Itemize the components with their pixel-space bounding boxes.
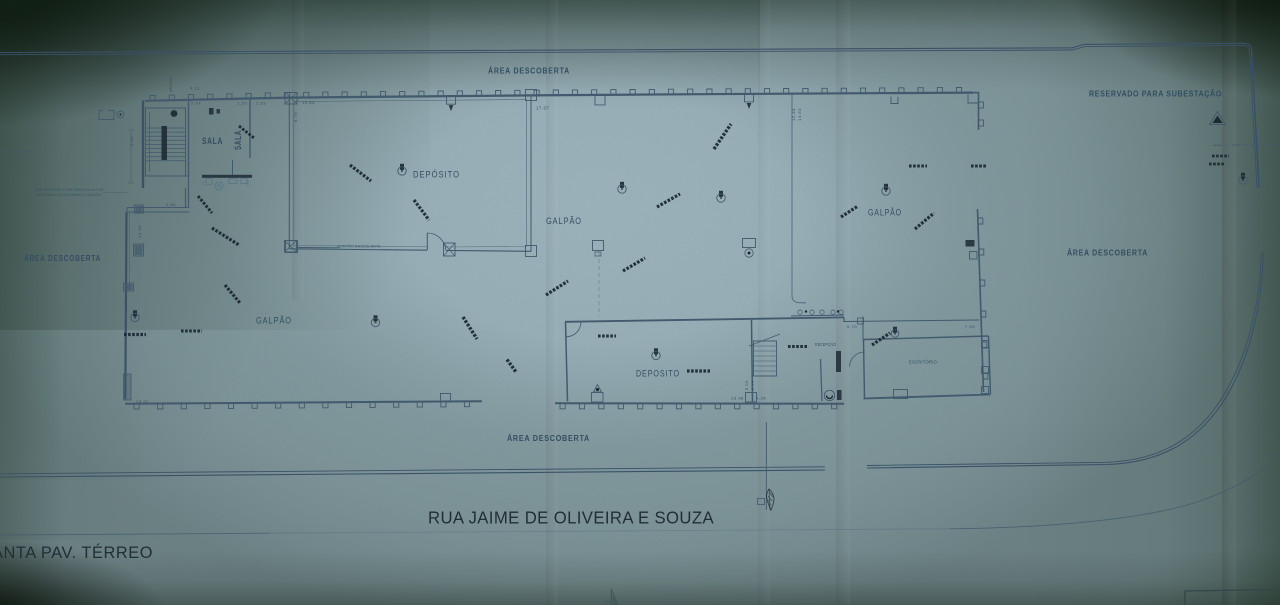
svg-text:ARGUA: ARGUA [169, 77, 173, 92]
svg-text:2.75: 2.75 [751, 380, 755, 390]
svg-text:GALPÃO: GALPÃO [256, 316, 292, 327]
svg-text:ESCRITÓRIO: ESCRITÓRIO [909, 360, 937, 365]
svg-text:ÁREA DESCOBERTA: ÁREA DESCOBERTA [1067, 249, 1148, 258]
svg-text:13.98: 13.98 [731, 396, 744, 401]
svg-text:28.32: 28.32 [136, 399, 149, 404]
svg-text:14.50: 14.50 [797, 108, 802, 121]
svg-text:ÁREA DESCOBERTA: ÁREA DESCOBERTA [488, 67, 570, 76]
svg-text:DEPOSITO: DEPOSITO [636, 369, 680, 379]
svg-text:SALA: SALA [202, 136, 223, 146]
svg-text:ANTESSALA DO ELEMENTO VASADO: ANTESSALA DO ELEMENTO VASADO [35, 193, 102, 197]
svg-text:RUA JAIME DE OLIVEIRA E SOUZA: RUA JAIME DE OLIVEIRA E SOUZA [428, 508, 714, 528]
svg-text:RECEPÇÃO: RECEPÇÃO [815, 342, 836, 347]
svg-text:5.00: 5.00 [745, 380, 749, 390]
svg-text:10.90: 10.90 [137, 225, 142, 238]
svg-text:ÁREA DESCOBERTA: ÁREA DESCOBERTA [507, 434, 590, 443]
svg-text:2.97: 2.97 [191, 101, 201, 106]
svg-text:VER 25% HUECO EM VENTILACAO DA: VER 25% HUECO EM VENTILACAO DA [35, 188, 104, 192]
svg-text:10.63: 10.63 [302, 100, 315, 105]
svg-text:9.11: 9.11 [190, 86, 200, 91]
svg-text:17.07: 17.07 [536, 106, 550, 111]
svg-text:ÁREA DESCOBERTA: ÁREA DESCOBERTA [24, 253, 101, 263]
svg-text:5.06: 5.06 [129, 136, 134, 146]
svg-text:1.20: 1.20 [237, 101, 247, 106]
svg-text:RESERVADO PARA SUBESTAÇÃO: RESERVADO PARA SUBESTAÇÃO [1089, 89, 1222, 99]
svg-text:DEPÓSITO: DEPÓSITO [413, 170, 460, 180]
svg-text:6.76: 6.76 [293, 112, 298, 122]
svg-text:SALA: SALA [233, 130, 243, 150]
svg-text:2.60: 2.60 [166, 202, 176, 207]
svg-text:5.70: 5.70 [847, 324, 857, 329]
svg-text:PORTÃO BASCULANTE: PORTÃO BASCULANTE [338, 243, 382, 248]
svg-text:12.44: 12.44 [791, 108, 796, 121]
svg-text:4.35: 4.35 [756, 396, 766, 401]
svg-text:7.05: 7.05 [965, 324, 975, 329]
svg-text:GALPÃO: GALPÃO [546, 216, 582, 227]
svg-text:ANTA PAV. TÉRREO: ANTA PAV. TÉRREO [0, 543, 153, 562]
svg-text:2.63: 2.63 [256, 101, 266, 106]
svg-text:GALPÃO: GALPÃO [868, 208, 902, 219]
